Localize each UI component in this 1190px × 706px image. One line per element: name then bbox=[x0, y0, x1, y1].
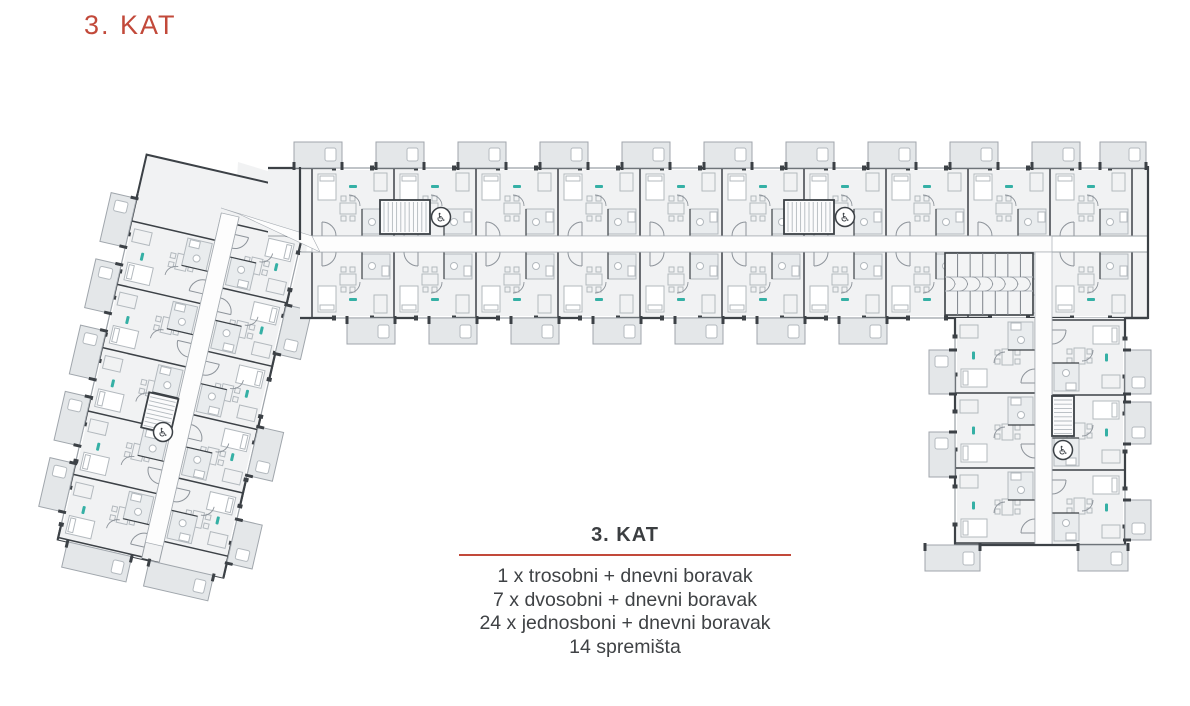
accessibility-icon: ♿ bbox=[154, 423, 173, 442]
balcony bbox=[539, 142, 590, 170]
storage-room bbox=[945, 253, 1033, 315]
balcony bbox=[510, 316, 561, 344]
right-wing-west-band bbox=[929, 318, 1035, 545]
balcony bbox=[703, 142, 754, 170]
legend-line-2: 7 x dvosobni + dnevni boravak bbox=[400, 589, 850, 613]
balcony bbox=[457, 142, 508, 170]
balcony bbox=[293, 142, 344, 170]
legend-line-4: 14 spremišta bbox=[400, 636, 850, 660]
accessibility-icon: ♿ bbox=[1054, 441, 1073, 460]
svg-text:♿: ♿ bbox=[436, 210, 447, 224]
balcony bbox=[1123, 349, 1151, 396]
svg-text:♿: ♿ bbox=[1058, 443, 1069, 457]
stair-core bbox=[1052, 396, 1074, 436]
balcony bbox=[674, 316, 725, 344]
balcony bbox=[428, 316, 479, 344]
balcony bbox=[756, 316, 807, 344]
balcony bbox=[1031, 142, 1082, 170]
balcony bbox=[621, 142, 672, 170]
legend-line-3: 24 x jednosboni + dnevni boravak bbox=[400, 612, 850, 636]
balcony bbox=[838, 316, 889, 344]
accessibility-icon: ♿ bbox=[432, 208, 451, 227]
balcony bbox=[949, 142, 1000, 170]
balcony bbox=[592, 316, 643, 344]
svg-text:♿: ♿ bbox=[840, 210, 851, 224]
legend: 3. KAT 1 x trosobni + dnevni boravak 7 x… bbox=[400, 524, 850, 659]
balcony bbox=[346, 316, 397, 344]
balcony bbox=[785, 142, 836, 170]
right-wing-end-balconies bbox=[924, 543, 1130, 571]
balcony bbox=[929, 431, 957, 479]
stair-core bbox=[380, 200, 430, 234]
legend-line-1: 1 x trosobni + dnevni boravak bbox=[400, 565, 850, 589]
balcony bbox=[867, 142, 918, 170]
legend-divider bbox=[459, 554, 791, 556]
balcony bbox=[1123, 401, 1151, 446]
balcony bbox=[929, 349, 957, 396]
accessibility-icon: ♿ bbox=[836, 208, 855, 227]
balcony bbox=[924, 543, 982, 571]
svg-text:♿: ♿ bbox=[158, 425, 169, 439]
balcony bbox=[375, 142, 426, 170]
legend-title: 3. KAT bbox=[400, 524, 850, 547]
balcony bbox=[1099, 142, 1148, 170]
stair-core bbox=[784, 200, 834, 234]
balcony bbox=[1077, 543, 1130, 571]
balcony bbox=[1123, 499, 1151, 542]
